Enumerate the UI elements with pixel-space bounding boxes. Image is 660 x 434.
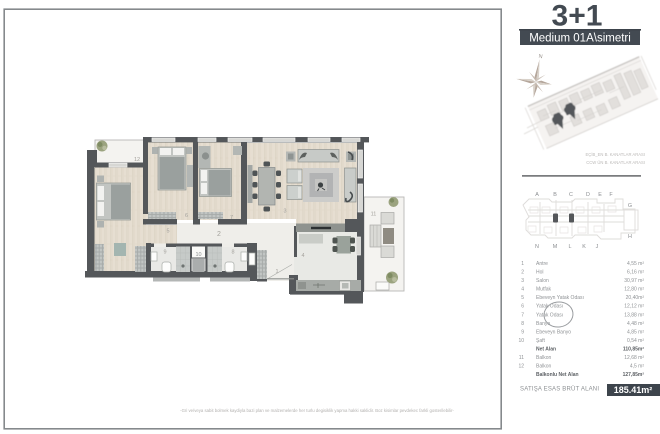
svg-text:1: 1 (275, 269, 278, 275)
svg-text:4,5 m²: 4,5 m² (630, 364, 645, 370)
svg-text:J: J (596, 244, 599, 250)
svg-text:Balkon: Balkon (536, 355, 552, 361)
svg-text:Ebeveyn Banyo: Ebeveyn Banyo (536, 329, 571, 335)
svg-text:9: 9 (163, 250, 166, 256)
svg-text:10: 10 (195, 252, 201, 258)
svg-text:6: 6 (521, 304, 524, 310)
svg-text:4,85 m²: 4,85 m² (627, 329, 644, 335)
svg-text:12,68 m²: 12,68 m² (624, 355, 644, 361)
svg-text:1: 1 (521, 261, 524, 267)
svg-text:20,40m²: 20,40m² (626, 295, 645, 301)
svg-text:B: B (553, 192, 557, 198)
svg-text:Mutfak: Mutfak (536, 287, 552, 293)
svg-text:4,55 m²: 4,55 m² (627, 261, 644, 267)
svg-text:12: 12 (518, 364, 524, 370)
svg-text:N: N (535, 244, 539, 250)
svg-text:8: 8 (521, 321, 524, 327)
svg-text:-Gri ve/veya sabit bolmek kayd: -Gri ve/veya sabit bolmek kaydiyla bazi … (180, 408, 454, 413)
svg-text:3: 3 (521, 278, 524, 284)
svg-text:12,12 m²: 12,12 m² (624, 304, 644, 310)
svg-text:2: 2 (521, 270, 524, 276)
svg-text:4,48 m²: 4,48 m² (627, 321, 644, 327)
svg-text:SATIŞA ESAS BRÜT ALANI: SATIŞA ESAS BRÜT ALANI (520, 386, 599, 393)
svg-text:9: 9 (521, 329, 524, 335)
svg-text:Şaft: Şaft (536, 338, 546, 344)
svg-text:3: 3 (283, 209, 286, 215)
svg-text:4: 4 (521, 287, 524, 293)
svg-text:D: D (586, 192, 590, 198)
svg-text:H: H (628, 234, 632, 240)
svg-text:7: 7 (230, 215, 233, 221)
svg-text:A: A (535, 192, 539, 198)
svg-text:CCW ÜN B. KANATLAR ARASI: CCW ÜN B. KANATLAR ARASI (586, 160, 645, 165)
svg-text:3+1: 3+1 (552, 0, 603, 33)
svg-text:EÇİB_EN B. KANATLAR ARASI: EÇİB_EN B. KANATLAR ARASI (586, 152, 646, 157)
svg-text:C: C (569, 192, 573, 198)
svg-text:185.41m²: 185.41m² (614, 385, 653, 395)
svg-text:12,80 m²: 12,80 m² (624, 287, 644, 293)
svg-text:N: N (538, 54, 543, 61)
svg-text:4: 4 (301, 253, 304, 259)
svg-text:0,54 m²: 0,54 m² (627, 338, 644, 344)
svg-text:5: 5 (521, 295, 524, 301)
svg-text:Medium 01A\simetri: Medium 01A\simetri (529, 33, 631, 45)
svg-text:110,85m²: 110,85m² (623, 347, 644, 353)
svg-text:Balkonlu Net Alan: Balkonlu Net Alan (536, 372, 579, 378)
svg-text:12: 12 (134, 157, 140, 163)
svg-text:F: F (609, 192, 613, 198)
svg-text:30,97 m²: 30,97 m² (624, 278, 644, 284)
svg-text:6: 6 (185, 213, 188, 219)
svg-text:Hol: Hol (536, 270, 544, 276)
svg-text:Ebeveyn Yatak Odası: Ebeveyn Yatak Odası (536, 295, 584, 301)
svg-text:Net Alan: Net Alan (536, 347, 556, 353)
svg-text:13,88 m²: 13,88 m² (624, 312, 644, 318)
svg-text:5: 5 (166, 229, 169, 235)
svg-text:Salon: Salon (536, 278, 549, 284)
svg-text:M: M (553, 244, 558, 250)
svg-text:Yatak Odası: Yatak Odası (536, 312, 563, 318)
svg-text:6,16 m²: 6,16 m² (627, 270, 644, 276)
svg-text:2: 2 (217, 231, 221, 238)
svg-text:Antre: Antre (536, 261, 548, 267)
svg-text:E: E (598, 192, 602, 198)
svg-text:Balkon: Balkon (536, 364, 552, 370)
svg-text:11: 11 (371, 212, 377, 218)
svg-text:L: L (569, 244, 572, 250)
svg-text:7: 7 (521, 312, 524, 318)
svg-text:K: K (582, 244, 586, 250)
svg-text:11: 11 (519, 355, 524, 361)
svg-text:8: 8 (231, 250, 234, 256)
svg-text:G: G (628, 203, 632, 209)
svg-text:10: 10 (518, 338, 524, 344)
svg-text:127,85m²: 127,85m² (623, 372, 645, 378)
